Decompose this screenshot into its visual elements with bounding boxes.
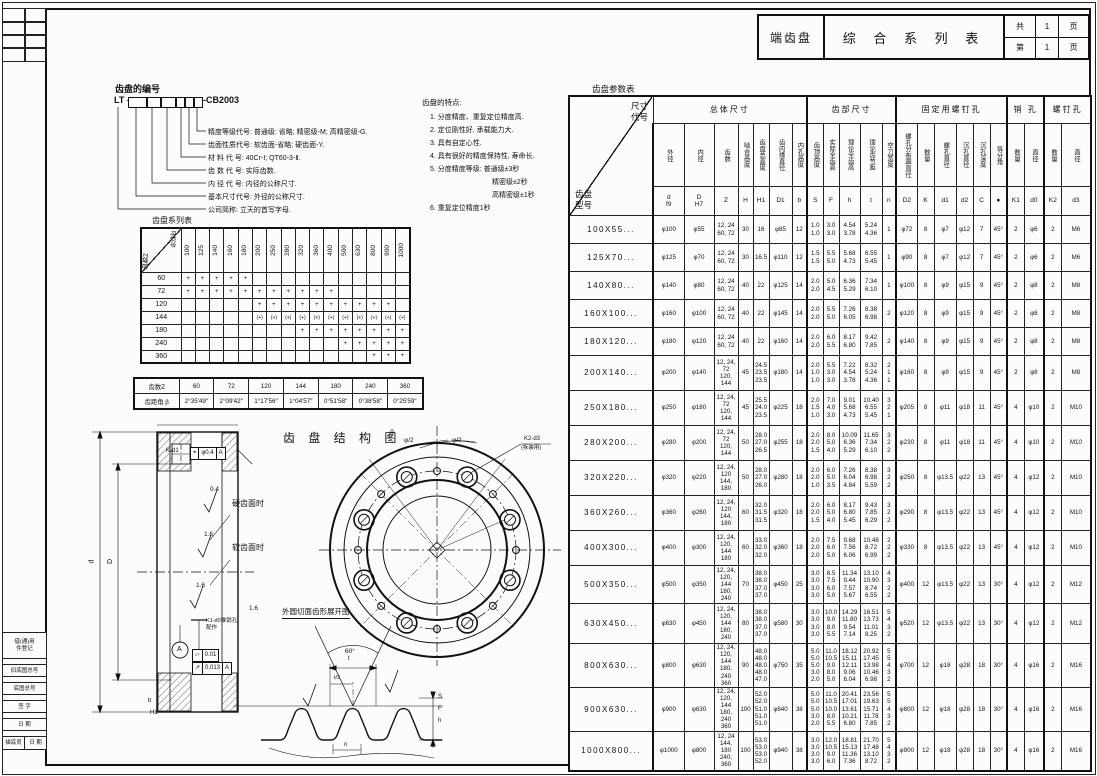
param-cell: 2.0 2.0 1.0	[807, 461, 823, 496]
roughness-3-value: 1.6	[196, 582, 205, 589]
param-cell: 11.34 9.44 7.57 5.67	[839, 566, 860, 604]
param-cell: 6.0 5.0 3.5	[823, 461, 839, 496]
model-label: 360X260...	[569, 496, 653, 531]
series-mark	[224, 324, 238, 337]
dev-dim-F: F	[438, 706, 442, 712]
column-header: 等分角	[990, 124, 1007, 187]
angle-value: 1°04′57″	[283, 394, 318, 410]
series-z-label: 180	[141, 324, 181, 337]
param-cell: 100	[738, 731, 753, 771]
param-cell: φ260	[684, 496, 714, 531]
param-cell: 18	[973, 687, 990, 731]
param-cell: φ900	[896, 731, 917, 771]
series-mark: +	[324, 324, 338, 337]
page-number: 第1页	[1005, 38, 1088, 59]
parameter-table: 尺寸 代号齿盘 型号总体尺寸齿部尺寸固定用螺钉孔销 孔螺钉孔外径内径齿数啮合高度…	[568, 95, 1092, 772]
param-cell: M6	[1061, 216, 1091, 244]
param-cell: 4	[1007, 731, 1024, 771]
param-cell: 30	[738, 216, 753, 244]
param-cell: φ250	[653, 391, 684, 426]
param-cell: 2.0 2.0	[807, 328, 823, 356]
column-header: 内径	[684, 124, 714, 187]
param-cell: 2.0 2.0	[807, 300, 823, 328]
param-cell: 13	[973, 566, 990, 604]
table-row: 140X80...φ140φ8012, 24 60, 724022φ125142…	[569, 272, 1091, 300]
param-cell: 7.5 6.0 5.0	[823, 531, 839, 566]
param-cell: 2	[1044, 300, 1061, 328]
param-cell: 14	[792, 328, 807, 356]
dim-H1-label: H1	[150, 710, 158, 716]
param-cell: 10.0 9.0 8.0 5.5	[823, 604, 839, 644]
param-cell: 13	[973, 604, 990, 644]
series-mark	[310, 272, 324, 285]
param-cell: φ18	[956, 391, 973, 426]
series-mark	[381, 272, 395, 285]
param-cell: 2	[1044, 356, 1061, 391]
column-header: 螺孔直径	[934, 124, 956, 187]
column-symbol: d0	[1024, 187, 1044, 216]
param-cell: 8	[917, 391, 934, 426]
param-cell: 12, 24, 120, 144 180, 240 360	[714, 644, 738, 688]
column-header: 实际全齿高	[823, 124, 839, 187]
drawing-sheet: { "title_block": { "part_name": "端齿盘", "…	[0, 0, 1097, 776]
param-table-title: 齿盘参数表	[592, 83, 635, 95]
dim-D-label: D	[107, 559, 114, 564]
series-mark: (+)	[310, 311, 324, 324]
param-cell: 16	[753, 216, 769, 244]
legend-item: 材 料 代 号: 40Cr-Ⅰ; QT60-3-Ⅱ.	[208, 153, 301, 163]
feature-item: 4. 具有很好的精度保持性, 寿命长.	[422, 150, 582, 163]
param-cell: 23.56 19.63 15.71 11.78 7.85	[860, 687, 882, 731]
param-cell: φ220	[684, 461, 714, 496]
datum-a-label: A	[177, 646, 182, 653]
series-mark	[195, 324, 209, 337]
series-mark	[281, 337, 295, 350]
param-cell: 12	[917, 604, 934, 644]
series-mark	[267, 272, 281, 285]
param-cell: φ800	[653, 644, 684, 688]
param-cell: φ320	[769, 496, 792, 531]
series-mark	[338, 272, 352, 285]
series-mark	[195, 298, 209, 311]
param-cell: 48.0 48.0 48.0 48.0 47.0	[753, 644, 769, 688]
table-row: 1000X800...φ1000φ80012, 24 144, 180 240,…	[569, 731, 1091, 771]
param-cell: 30°	[990, 687, 1007, 731]
angle-z-value: 60	[179, 378, 214, 394]
param-cell: φ160	[653, 300, 684, 328]
series-mark: +	[210, 272, 224, 285]
param-cell: φ630	[653, 604, 684, 644]
series-mark: +	[238, 272, 252, 285]
series-mark: +	[238, 285, 252, 298]
param-cell: φ520	[896, 604, 917, 644]
param-cell: 8	[917, 356, 934, 391]
param-cell: 6.36 5.29	[839, 272, 860, 300]
column-header: 齿数	[714, 124, 738, 187]
column-header: 沉孔深度	[973, 124, 990, 187]
model-label: 400X300...	[569, 531, 653, 566]
dev-angle-label: 60°	[345, 648, 355, 655]
param-cell: 18	[792, 426, 807, 461]
param-cell: φ100	[653, 216, 684, 244]
param-cell: 2	[882, 328, 896, 356]
param-cell: 18	[792, 496, 807, 531]
angle-value: 2°09′42″	[214, 394, 249, 410]
param-cell: M10	[1061, 461, 1091, 496]
param-cell: 2	[1044, 391, 1061, 426]
param-cell: 60	[738, 496, 753, 531]
param-cell: φ250	[896, 461, 917, 496]
roughness-soft-value: 1.6	[204, 531, 213, 538]
param-cell: 18	[792, 461, 807, 496]
series-mark	[238, 337, 252, 350]
page-info: 共1页 第1页	[1005, 16, 1088, 58]
param-cell: φ300	[684, 531, 714, 566]
series-mark: +	[367, 337, 381, 350]
column-symbol: d1	[934, 187, 956, 216]
column-header: 沉孔直径	[956, 124, 973, 187]
param-cell: φ7	[934, 244, 956, 272]
series-mark: (+)	[395, 311, 409, 324]
param-cell: 4	[1007, 644, 1024, 688]
param-cell: M10	[1061, 426, 1091, 461]
param-cell: 7.0 4.0 3.0	[823, 391, 839, 426]
series-mark	[252, 324, 266, 337]
param-cell: 45°	[990, 356, 1007, 391]
param-cell: 11.0 10.5 9.0 8.0 5.0	[823, 644, 839, 688]
param-cell: 30	[792, 604, 807, 644]
param-cell: 20.92 17.45 13.98 10.46 6.98	[860, 644, 882, 688]
column-symbol: d3	[1061, 187, 1091, 216]
param-cell: M16	[1061, 644, 1091, 688]
series-mark: (+)	[324, 311, 338, 324]
param-cell: 13.10 10.90 8.74 6.55	[860, 566, 882, 604]
column-header: 理论齿节距	[860, 124, 882, 187]
series-row: 144(+)(+)(+)(+)(+)(+)(+)(+)(+)(+)(+)	[141, 311, 410, 324]
column-header: 数量	[1007, 124, 1024, 187]
series-mark	[224, 337, 238, 350]
column-symbol: F	[823, 187, 839, 216]
param-cell: 30°	[990, 644, 1007, 688]
param-cell: 12, 24, 120 144, 180	[714, 461, 738, 496]
param-cell: 5 5 4 3 2	[882, 644, 896, 688]
feature-item: 1. 分度精度、重复定位精度高.	[422, 111, 582, 124]
hard-face-label: 硬齿面时	[232, 498, 264, 509]
param-cell: 5.5 5.0	[823, 244, 839, 272]
param-cell: φ18	[934, 687, 956, 731]
param-cell: φ12	[1024, 604, 1044, 644]
column-symbol: K1	[1007, 187, 1024, 216]
param-cell: φ180	[684, 391, 714, 426]
column-header: 外径	[653, 124, 684, 187]
column-symbol: b	[792, 187, 807, 216]
param-cell: 2	[1044, 244, 1061, 272]
column-header: 螺孔分布圆直径	[896, 124, 917, 187]
param-cell: φ180	[769, 356, 792, 391]
param-cell: 22	[753, 300, 769, 328]
series-mark: +	[381, 350, 395, 363]
param-cell: 3.0 3.0 3.0 3.0	[807, 566, 823, 604]
theta-label: θ	[390, 430, 394, 437]
param-cell: 2	[1044, 426, 1061, 461]
param-cell: M8	[1061, 272, 1091, 300]
param-cell: φ200	[653, 356, 684, 391]
column-header: 数量	[1044, 124, 1061, 187]
model-label: 140X80...	[569, 272, 653, 300]
column-header: 齿内缘直径	[769, 124, 792, 187]
param-cell: 6.55 5.45	[860, 244, 882, 272]
param-cell: 8	[917, 496, 934, 531]
param-cell: 12, 24, 120, 144 180	[714, 531, 738, 566]
param-cell: 8	[917, 461, 934, 496]
param-cell: φ120	[684, 328, 714, 356]
param-cell: 11	[973, 426, 990, 461]
pages-total: 共1页	[1005, 16, 1088, 38]
column-symbol: D H7	[684, 187, 714, 216]
param-cell: φ13.5	[934, 461, 956, 496]
feature-item: 高精密级±1秒	[422, 189, 582, 202]
series-mark	[295, 350, 309, 363]
series-mark	[338, 350, 352, 363]
param-cell: 12, 24, 72 120, 144	[714, 356, 738, 391]
param-cell: 45°	[990, 328, 1007, 356]
param-cell: 4 3 2 2	[882, 566, 896, 604]
param-cell: 16.5	[753, 244, 769, 272]
series-col-header: 200	[252, 228, 266, 272]
param-cell: φ11	[934, 391, 956, 426]
param-cell: φ225	[769, 391, 792, 426]
position-tolerance-frame: ⌖ φ0.4 A	[190, 447, 226, 460]
param-cell: 38	[792, 687, 807, 731]
series-col-header: 180	[238, 228, 252, 272]
dev-dim-t2: t/2	[334, 675, 340, 681]
param-cell: 53.0 53.0 53.0 52.0	[753, 731, 769, 771]
series-mark: +	[295, 285, 309, 298]
phi-half-left-label: φ/2	[404, 437, 414, 444]
series-corner-cell: 外径d齿数Z	[141, 228, 181, 272]
series-mark	[324, 337, 338, 350]
series-mark: +	[367, 298, 381, 311]
param-cell: 8.17 6.80 5.45	[839, 496, 860, 531]
param-cell: φ11	[934, 426, 956, 461]
series-mark: +	[367, 324, 381, 337]
param-cell: 24.5 23.5 23.5	[753, 356, 769, 391]
column-symbol: C	[973, 187, 990, 216]
param-cell: φ9	[934, 356, 956, 391]
column-symbol: S	[807, 187, 823, 216]
angle-value: 2°35′49″	[179, 394, 214, 410]
series-mark	[181, 311, 195, 324]
param-cell: 12, 24 60, 72	[714, 216, 738, 244]
param-cell: M8	[1061, 356, 1091, 391]
param-cell: 40	[738, 272, 753, 300]
param-cell: 2.0 1.0 1.0	[807, 356, 823, 391]
series-mark: (+)	[338, 311, 352, 324]
series-mark	[395, 298, 409, 311]
param-cell: 8	[917, 300, 934, 328]
param-cell: 5 5 4 3 2	[882, 687, 896, 731]
series-mark	[195, 311, 209, 324]
feature-item: 6. 重复定位精度1秒	[422, 202, 582, 215]
column-group: 齿部尺寸	[807, 96, 896, 124]
param-cell: φ10	[1024, 391, 1044, 426]
legend-item: 公司简称: 立天的首写字母.	[208, 205, 291, 215]
param-cell: 2	[1007, 328, 1024, 356]
table-row: 280X200...φ280φ20012, 24, 72 120, 144502…	[569, 426, 1091, 461]
param-cell: 80	[738, 604, 753, 644]
param-cell: 1	[882, 216, 896, 244]
series-row: 180++++++++	[141, 324, 410, 337]
param-cell: 5.24 4.36	[860, 216, 882, 244]
column-group: 销 孔	[1007, 96, 1044, 124]
series-mark: +	[367, 350, 381, 363]
series-mark: +	[353, 298, 367, 311]
param-cell: φ120	[896, 300, 917, 328]
series-col-header: 160	[224, 228, 238, 272]
dev-dim-n: n	[344, 742, 347, 748]
angle-z-value: 360	[388, 378, 423, 394]
series-mark: +	[381, 324, 395, 337]
param-cell: 33.0 32.0 32.0	[753, 531, 769, 566]
series-mark: +	[310, 298, 324, 311]
param-cell: 8.32 5.24 4.36	[860, 356, 882, 391]
param-cell: 2.0 2.0 1.5	[807, 426, 823, 461]
runout-icon: ↗	[193, 663, 203, 674]
param-cell: 45°	[990, 300, 1007, 328]
param-cell: 4.54 3.78	[839, 216, 860, 244]
margin-field-split: 描底员日 期	[2, 736, 47, 750]
param-cell: 38.0 38.0 37.0 37.0	[753, 566, 769, 604]
series-mark: +	[252, 298, 266, 311]
param-cell: 45°	[990, 244, 1007, 272]
column-symbol: Z	[714, 187, 738, 216]
param-cell: φ12	[1024, 461, 1044, 496]
series-mark	[238, 324, 252, 337]
param-cell: 3.0 3.0	[823, 216, 839, 244]
series-mark	[181, 337, 195, 350]
tooth-profile-development	[233, 598, 478, 760]
param-cell: 7	[973, 244, 990, 272]
series-mark: +	[181, 272, 195, 285]
model-label: 250X180...	[569, 391, 653, 426]
column-header: 空刀宽度	[882, 124, 896, 187]
series-row: 240+++++	[141, 337, 410, 350]
param-cell: 10.40 6.55 5.45	[860, 391, 882, 426]
param-cell: 2.0 2.0 1.5	[807, 496, 823, 531]
param-cell: 13	[973, 496, 990, 531]
param-cell: 21.70 17.48 13.10 8.72	[860, 731, 882, 771]
param-cell: 13	[973, 531, 990, 566]
param-cell: 5.68 4.73	[839, 244, 860, 272]
column-header: 齿盘总高度	[753, 124, 769, 187]
param-cell: φ700	[896, 644, 917, 688]
param-cell: φ80	[684, 272, 714, 300]
series-mark: +	[195, 285, 209, 298]
angle-value: 1°17′56″	[249, 394, 284, 410]
series-mark	[238, 298, 252, 311]
param-cell: 8	[917, 272, 934, 300]
column-symbol: K	[917, 187, 934, 216]
callout-k2d3-note: (拆装用)	[521, 443, 541, 451]
param-cell: 12, 24, 72 120, 144	[714, 426, 738, 461]
series-mark: +	[224, 285, 238, 298]
param-cell: 11	[973, 391, 990, 426]
series-mark: (+)	[367, 311, 381, 324]
param-cell: 28.0 27.0 26.5	[753, 426, 769, 461]
column-symbol: H	[738, 187, 753, 216]
param-cell: 9	[973, 356, 990, 391]
param-cell: φ12	[1024, 496, 1044, 531]
param-cell: 9	[973, 272, 990, 300]
param-cell: 70	[738, 566, 753, 604]
param-cell: φ13.5	[934, 531, 956, 566]
column-header: 理论全齿高	[839, 124, 860, 187]
series-mark	[210, 337, 224, 350]
param-cell: φ140	[684, 356, 714, 391]
param-cell: 45°	[990, 531, 1007, 566]
param-cell: 90	[738, 644, 753, 688]
param-cell: 9	[973, 300, 990, 328]
param-cell: 4	[1007, 391, 1024, 426]
param-cell: M10	[1061, 391, 1091, 426]
series-z-label: 72	[141, 285, 181, 298]
position-icon: ⌖	[191, 448, 199, 459]
param-cell: φ110	[769, 244, 792, 272]
series-mark	[324, 272, 338, 285]
param-cell: 8.5 7.5 6.0 5.0	[823, 566, 839, 604]
param-corner-cell: 尺寸 代号齿盘 型号	[569, 96, 653, 216]
param-cell: φ72	[896, 216, 917, 244]
tooth-angle-table: 齿数Z6072120144180240360齿距角 β2°35′49″2°09′…	[133, 377, 424, 410]
table-row: 250X180...φ250φ18012, 24, 72 120, 144452…	[569, 391, 1091, 426]
param-cell: M12	[1061, 604, 1091, 644]
series-mark: +	[395, 324, 409, 337]
param-cell: 12, 24, 120, 144 180, 240 360	[714, 687, 738, 731]
param-cell: 5 4 3 2	[882, 731, 896, 771]
param-cell: 30°	[990, 731, 1007, 771]
series-mark	[367, 285, 381, 298]
series-mark	[367, 272, 381, 285]
legend-item: 精度等级代号: 普通级: 省略; 精密级-M; 高精密级-G.	[208, 127, 367, 137]
param-cell: φ360	[769, 531, 792, 566]
param-cell: 32.0 31.5 31.5	[753, 496, 769, 531]
legend-item: 内 径 代 号: 内径的公称尺寸.	[208, 179, 297, 189]
param-cell: 4	[1007, 604, 1024, 644]
param-cell: M8	[1061, 328, 1091, 356]
param-cell: 45	[738, 356, 753, 391]
param-cell: φ840	[769, 687, 792, 731]
param-cell: 18	[792, 391, 807, 426]
angle-value: 0°25′59″	[388, 394, 423, 410]
model-label: 100X55...	[569, 216, 653, 244]
param-cell: 3 2 2	[882, 461, 896, 496]
dim-d-label: d	[88, 560, 95, 564]
param-cell: 3 2 2	[882, 426, 896, 461]
param-cell: 2	[1044, 566, 1061, 604]
param-cell: M10	[1061, 496, 1091, 531]
flatness-tolerance-frame: ▱ 0.01	[192, 649, 219, 662]
series-col-header: 320	[295, 228, 309, 272]
param-cell: 18	[973, 731, 990, 771]
column-symbol: D1	[769, 187, 792, 216]
param-cell: 12, 24, 120, 144 180, 240	[714, 604, 738, 644]
series-col-header: 1000	[395, 228, 409, 272]
series-z-label: 144	[141, 311, 181, 324]
param-cell: φ180	[653, 328, 684, 356]
param-cell: φ15	[956, 272, 973, 300]
series-mark: (+)	[281, 311, 295, 324]
param-cell: φ7	[934, 216, 956, 244]
